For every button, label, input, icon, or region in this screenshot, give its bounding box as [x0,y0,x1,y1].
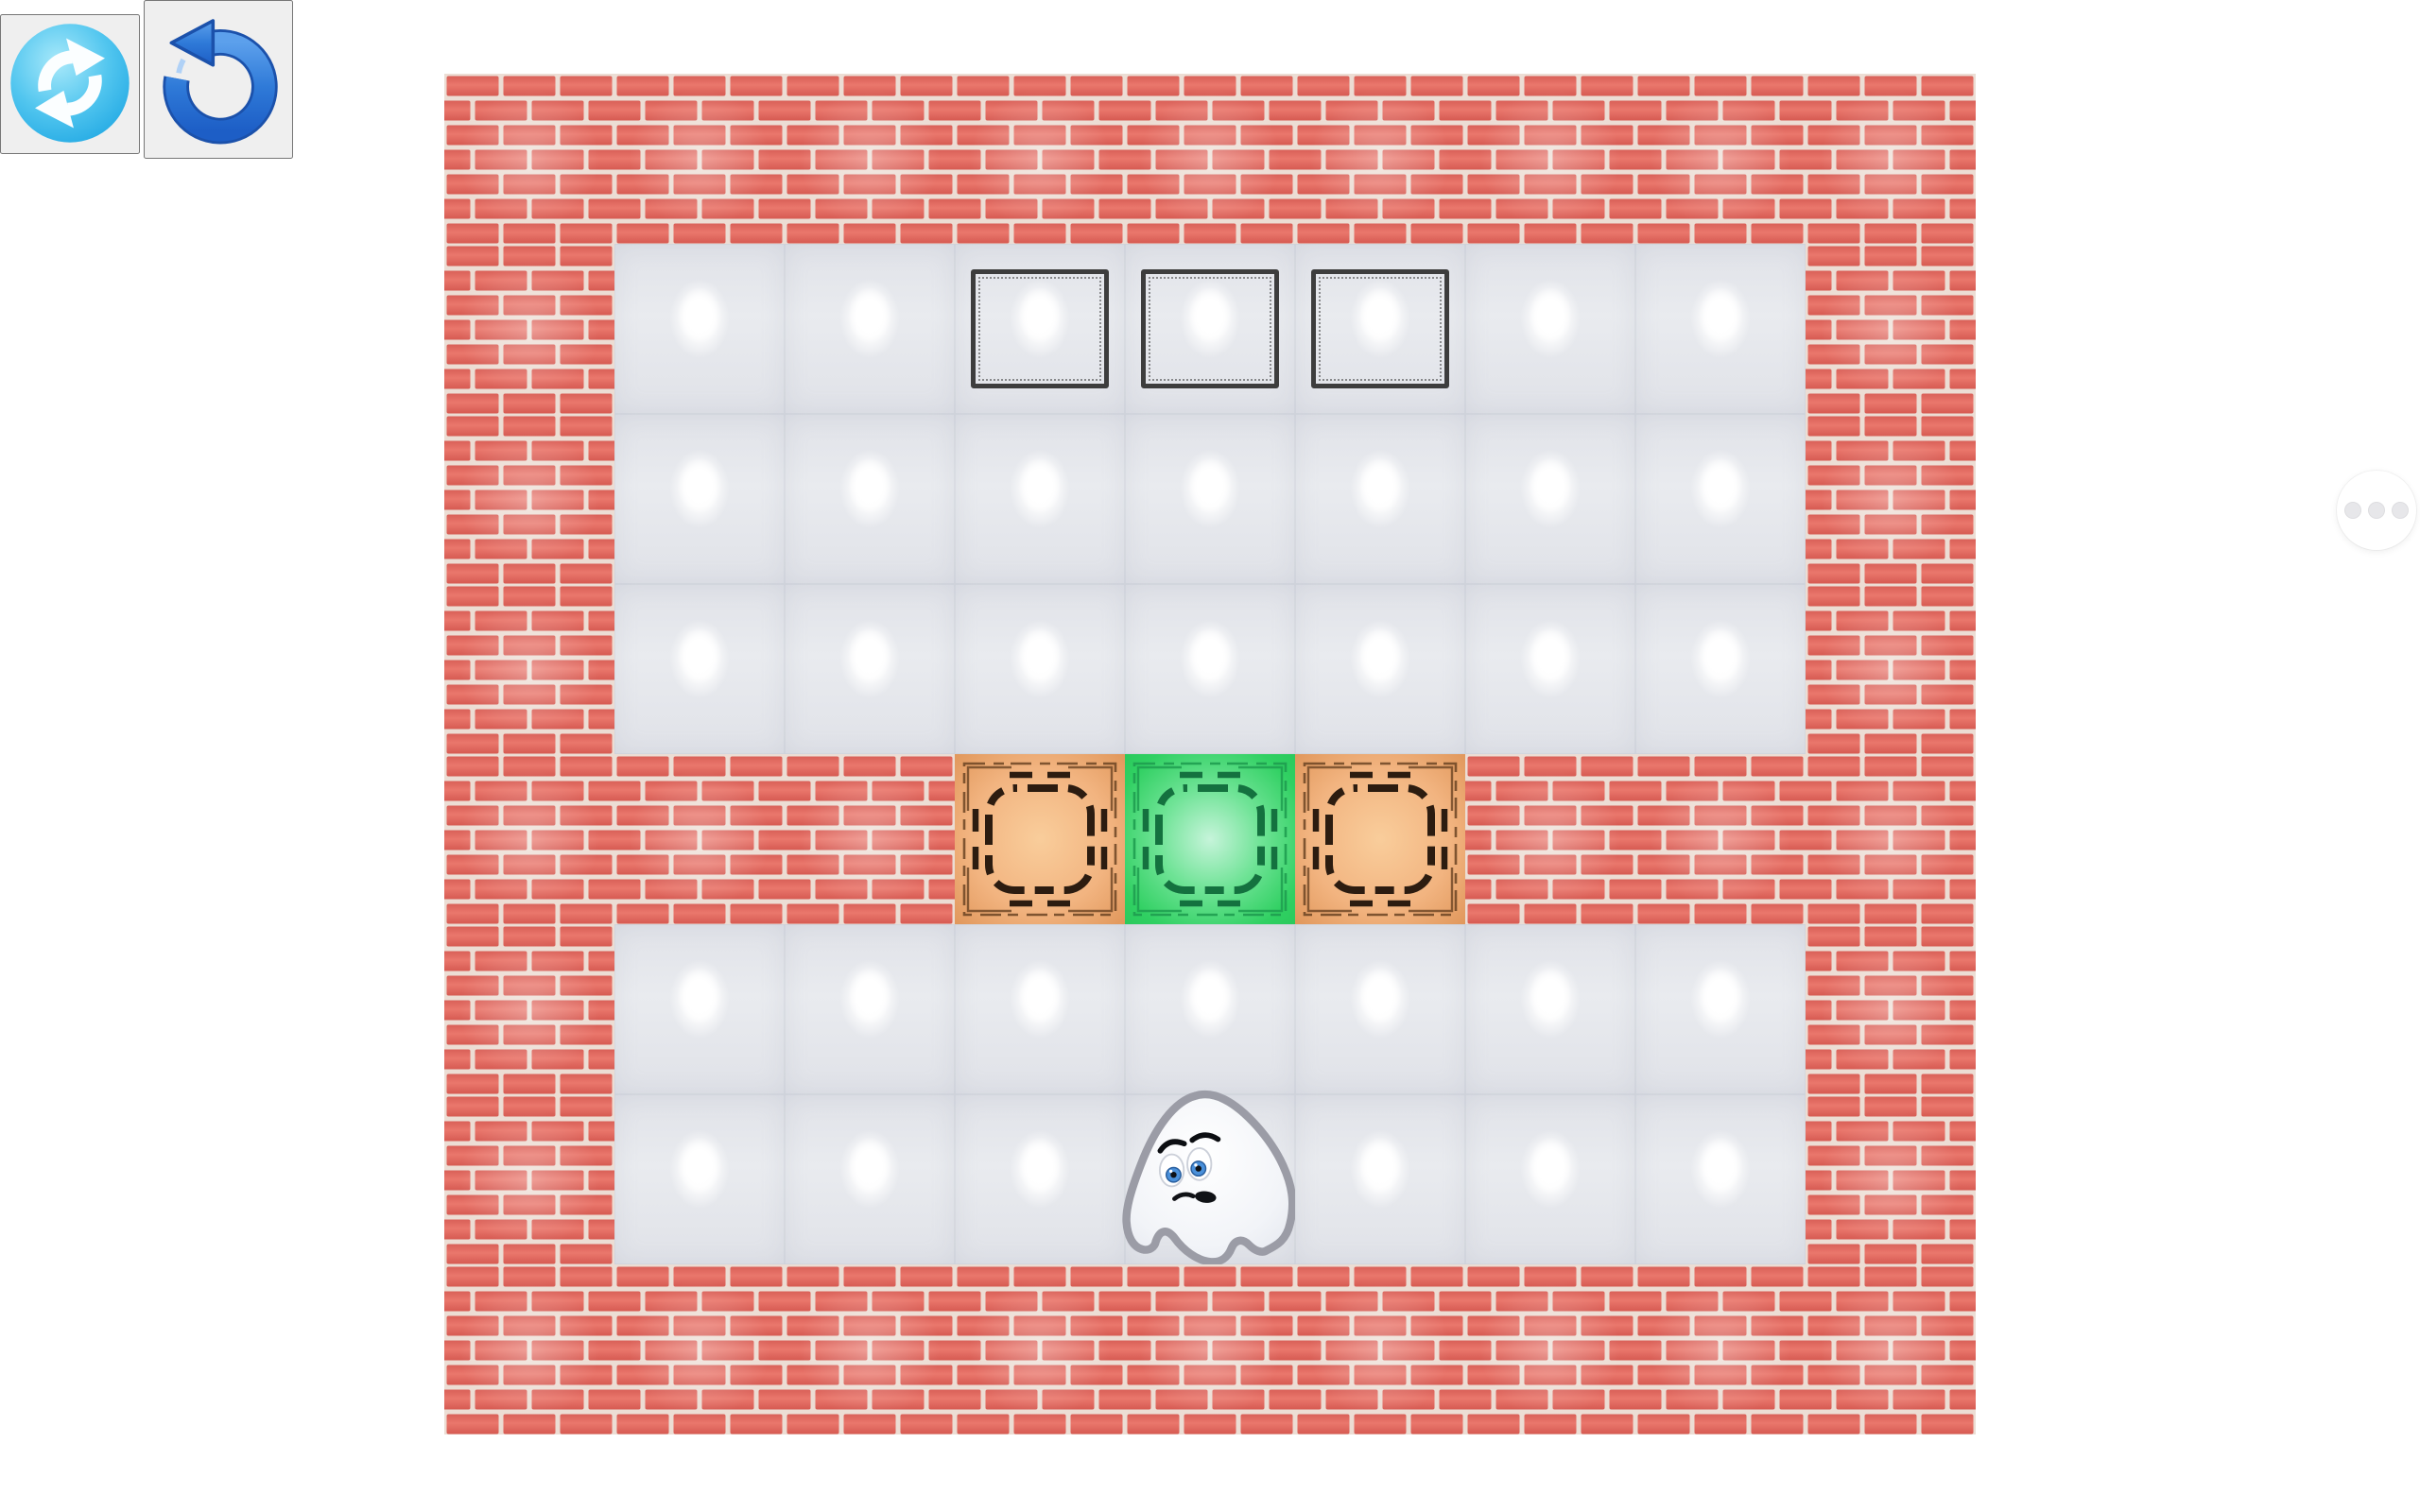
floor-tile [1295,584,1465,754]
goal-tile [1125,754,1295,924]
brick-texture [1295,1264,1465,1435]
floor-tile [1635,414,1806,584]
brick-wall [444,74,614,244]
floor-tile [1295,924,1465,1094]
undo-icon [151,11,285,146]
brick-wall [1125,74,1295,244]
brick-texture [444,414,614,584]
brick-wall [614,1264,785,1435]
brick-texture [785,754,955,924]
goal-sprite [1125,754,1295,924]
brick-texture [1465,754,1635,924]
brick-texture [444,584,614,754]
floor-tile [1295,1094,1465,1264]
floor-tile [785,924,955,1094]
more-button[interactable] [2337,471,2416,550]
undo-button[interactable] [144,0,293,159]
brick-wall [1806,414,1976,584]
brick-texture [1806,414,1976,584]
brick-wall [785,1264,955,1435]
brick-texture [955,74,1125,244]
brick-texture [1465,74,1635,244]
floor-tile [955,1094,1125,1264]
brick-wall [444,244,614,414]
brick-wall [1465,754,1635,924]
brick-wall [955,1264,1125,1435]
brick-texture [444,1094,614,1264]
brick-texture [785,1264,955,1435]
floor-tile [614,414,785,584]
crate-sprite [1295,754,1465,924]
brick-wall [614,754,785,924]
floor-tile [785,244,955,414]
floor-tile [614,1094,785,1264]
brick-texture [444,74,614,244]
brick-wall [1465,74,1635,244]
floor-tile [955,584,1125,754]
floor-tile [1465,584,1635,754]
brick-wall [1806,584,1976,754]
floor-tile [785,1094,955,1264]
brick-wall [1806,244,1976,414]
floor-tile [1465,244,1635,414]
brick-texture [1806,924,1976,1094]
brick-wall [614,74,785,244]
floor-tile [955,414,1125,584]
floor-tile [785,584,955,754]
brick-texture [444,754,614,924]
brick-texture [1635,1264,1806,1435]
brick-texture [444,244,614,414]
floor-tile [1635,244,1806,414]
brick-wall [955,74,1125,244]
restart-button[interactable] [0,14,140,154]
floor-tile [1635,924,1806,1094]
floor-tile [1465,924,1635,1094]
brick-wall [1125,1264,1295,1435]
crate[interactable] [955,754,1125,924]
floor-tile [1295,244,1465,414]
floor-tile [1125,924,1295,1094]
brick-wall [444,924,614,1094]
brick-wall [444,414,614,584]
brick-texture [614,1264,785,1435]
brick-wall [444,1094,614,1264]
floor-tile [1125,414,1295,584]
ellipsis-icon [2344,502,2361,519]
floor-tile [1295,414,1465,584]
floor-tile [1125,1094,1295,1264]
brick-wall [1806,924,1976,1094]
ellipsis-icon [2368,502,2385,519]
brick-texture [1295,74,1465,244]
brick-texture [1806,74,1976,244]
floor-tile [1125,584,1295,754]
brick-wall [1465,1264,1635,1435]
floor-tile [1465,1094,1635,1264]
brick-wall [785,754,955,924]
crate[interactable] [1295,754,1465,924]
brick-wall [444,754,614,924]
brick-wall [1806,74,1976,244]
brick-wall [1635,74,1806,244]
brick-wall [785,74,955,244]
brick-wall [1295,74,1465,244]
floor-tile [785,414,955,584]
ghost-character[interactable] [1121,1089,1299,1266]
brick-wall [1635,754,1806,924]
brick-texture [1806,584,1976,754]
brick-texture [614,74,785,244]
floor-tile [1635,1094,1806,1264]
brick-wall [1295,1264,1465,1435]
brick-texture [1635,754,1806,924]
brick-texture [444,924,614,1094]
refresh-icon [8,21,132,146]
floor-tile [614,244,785,414]
brick-wall [444,584,614,754]
target-outline [971,269,1109,388]
game-board [444,74,1976,1435]
brick-texture [1806,1264,1976,1435]
brick-wall [1635,1264,1806,1435]
brick-texture [1806,754,1976,924]
brick-wall [1806,754,1976,924]
floor-tile [955,924,1125,1094]
target-outline [1311,269,1449,388]
floor-tile [1635,584,1806,754]
brick-wall [444,1264,614,1435]
target-outline [1141,269,1279,388]
floor-tile [614,924,785,1094]
brick-texture [444,1264,614,1435]
floor-tile [614,584,785,754]
brick-texture [1806,1094,1976,1264]
brick-texture [1465,1264,1635,1435]
brick-wall [1806,1094,1976,1264]
ellipsis-icon [2392,502,2409,519]
brick-texture [1635,74,1806,244]
brick-texture [1125,1264,1295,1435]
brick-texture [955,1264,1125,1435]
brick-texture [614,754,785,924]
brick-wall [1806,1264,1976,1435]
floor-tile [955,244,1125,414]
brick-texture [785,74,955,244]
floor-tile [1125,244,1295,414]
brick-texture [1806,244,1976,414]
brick-texture [1125,74,1295,244]
crate-sprite [955,754,1125,924]
floor-tile [1465,414,1635,584]
